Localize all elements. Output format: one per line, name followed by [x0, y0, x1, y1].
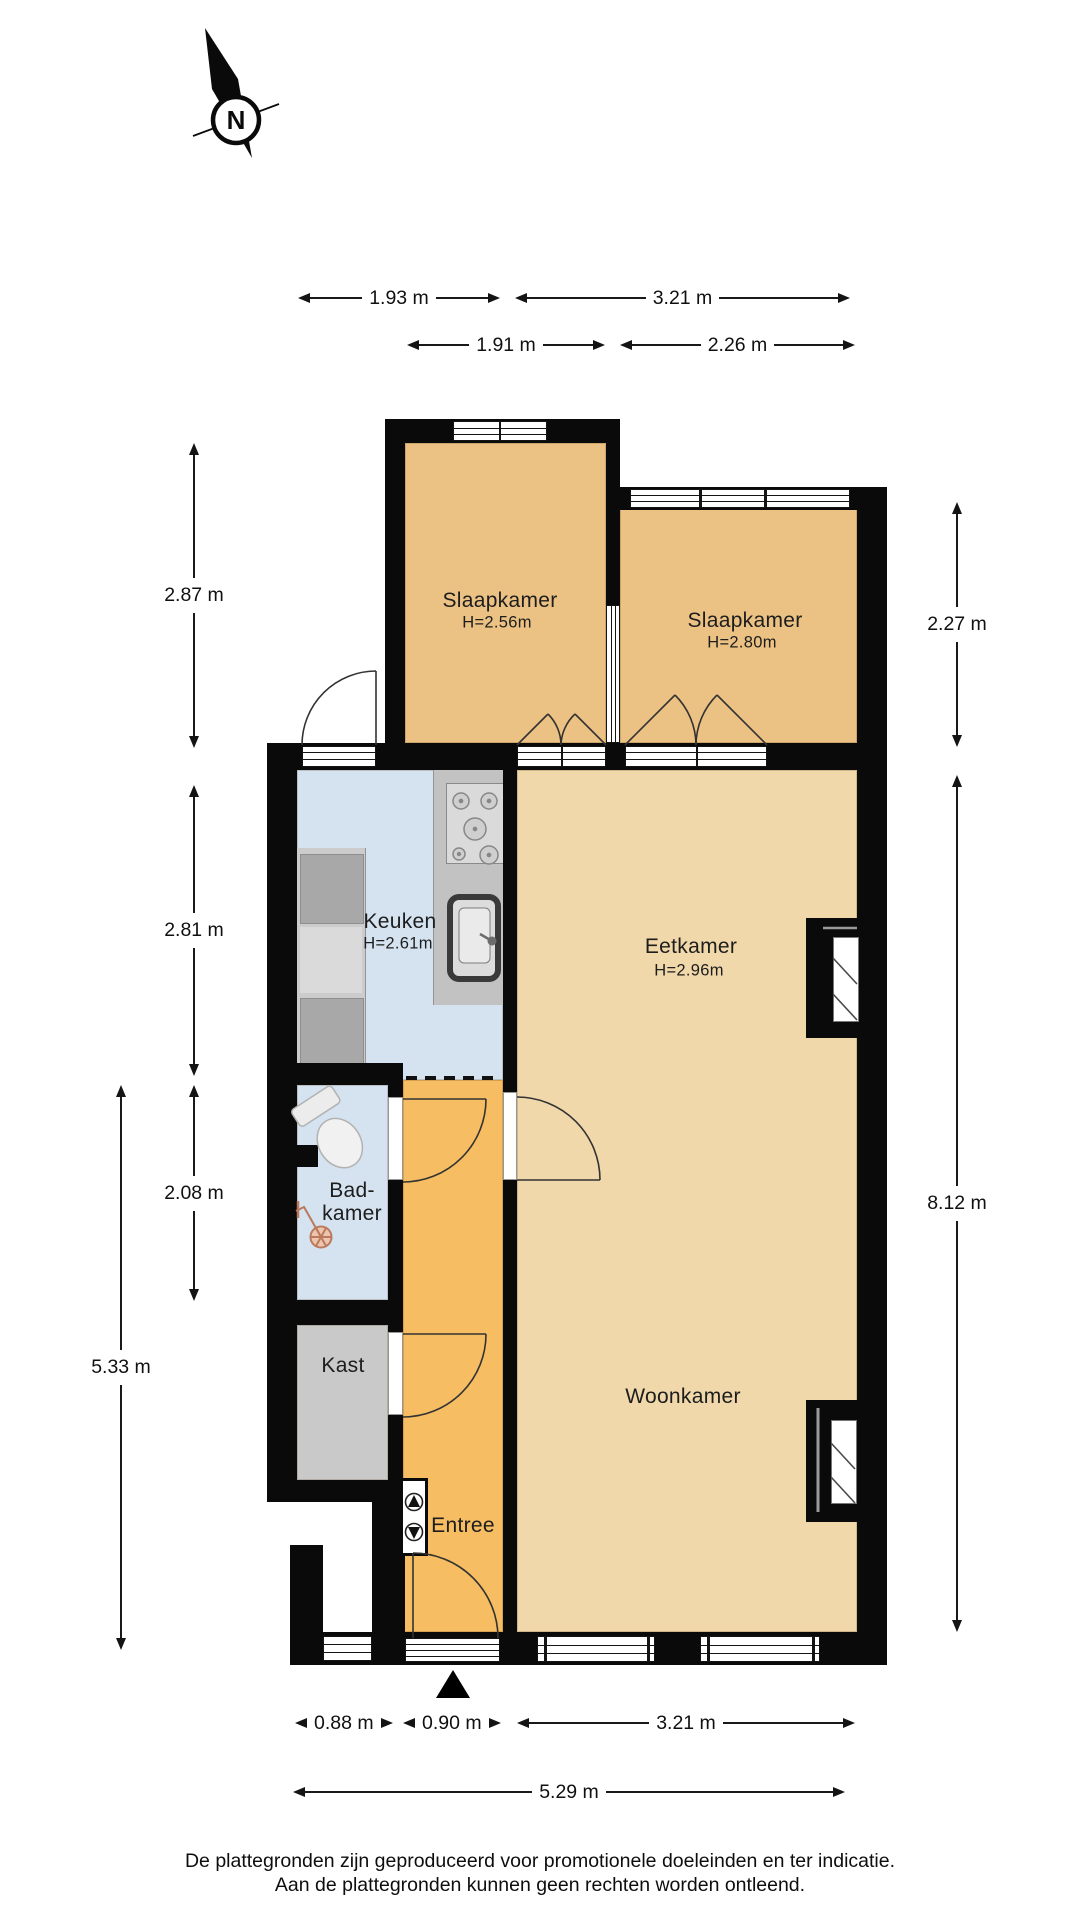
livingroom-window2	[700, 1636, 820, 1662]
room-label-keuken: Keuken	[363, 910, 436, 934]
dimension-label: 2.26 m	[701, 334, 775, 357]
hall-left-wall-upper	[388, 1063, 403, 1097]
bathroom-top-wall	[267, 1063, 403, 1085]
bottom-wall-pillar2	[655, 1632, 700, 1665]
arrow-up-icon	[189, 785, 199, 797]
dimension-bottom-door: 0.90 m	[403, 1713, 500, 1733]
dimension-label: 2.87 m	[164, 578, 224, 613]
dimension-label: 3.21 m	[646, 287, 720, 310]
frenchdoor1-sill	[517, 746, 606, 767]
arrow-left-icon	[517, 1718, 529, 1728]
arrow-down-icon	[189, 1289, 199, 1301]
kitchen-right-wall	[503, 770, 517, 1092]
hall-left-wall-middle	[388, 1180, 403, 1332]
arrow-down-icon	[952, 735, 962, 747]
dimension-label: 1.91 m	[469, 334, 543, 357]
arrow-right-icon	[833, 1787, 845, 1797]
bedroom1-window	[453, 421, 547, 441]
ceiling-label-eetkamer: H=2.96m	[654, 962, 724, 981]
dimension-label: 2.81 m	[164, 913, 224, 948]
dimension-bottom-living: 3.21 m	[517, 1713, 855, 1733]
arrow-right-icon	[488, 293, 500, 303]
arrow-down-icon	[952, 1620, 962, 1632]
room-label-eetkamer: Eetkamer	[645, 935, 737, 959]
arrow-right-icon	[838, 293, 850, 303]
arrow-left-icon	[403, 1718, 415, 1728]
mid-band-kitchen	[376, 743, 517, 770]
dimension-label: 0.88 m	[307, 1712, 381, 1735]
arrow-down-icon	[189, 736, 199, 748]
backdoor-sill	[302, 746, 376, 767]
bathroom-wall-stub	[297, 1145, 318, 1167]
arrow-down-icon	[189, 1064, 199, 1076]
dimension-left-bathroom: 2.08 m	[159, 1085, 229, 1301]
floor-plan-page: { "compass": { "letter": "N" }, "rooms":…	[0, 0, 1080, 1920]
kitchen-backdoor-swing	[302, 671, 376, 745]
dimension-left-kitchen: 2.81 m	[159, 785, 229, 1076]
bedrooms-divider-wall	[606, 443, 620, 605]
left-exterior-wall	[267, 743, 297, 1502]
counter-middle-section	[300, 927, 362, 993]
ceiling-label-slaapkamer2: H=2.80m	[707, 634, 777, 653]
room-label-slaapkamer1: Slaapkamer	[442, 589, 557, 613]
arrow-up-icon	[952, 502, 962, 514]
arrow-left-icon	[293, 1787, 305, 1797]
bottom-wall-pillar1	[500, 1632, 537, 1665]
dimension-label: 2.08 m	[164, 1176, 224, 1211]
bathroom-closet-wall	[267, 1300, 388, 1325]
arrow-up-icon	[189, 443, 199, 455]
ceiling-label-keuken: H=2.61m	[363, 935, 433, 954]
dimension-right-bedroom: 2.27 m	[922, 502, 992, 747]
arrow-up-icon	[952, 775, 962, 787]
arrow-up-icon	[116, 1085, 126, 1097]
room-label-entree: Entree	[431, 1514, 495, 1538]
disclaimer-line1: De plattegronden zijn geproduceerd voor …	[0, 1849, 1080, 1873]
disclaimer-footer: De plattegronden zijn geproduceerd voor …	[0, 1849, 1080, 1897]
bedroom2-window	[630, 489, 850, 508]
stove	[446, 783, 504, 864]
entrance-marker-icon	[436, 1670, 470, 1698]
dimension-label: 8.12 m	[927, 1186, 987, 1221]
bathroom-door-opening	[388, 1097, 403, 1180]
room-label-badkamer-line2: kamer	[322, 1202, 382, 1226]
livingroom-window1	[537, 1636, 655, 1662]
radiator1	[833, 937, 859, 1022]
mid-band-pillar	[606, 743, 625, 770]
closet-bottom-wall	[267, 1480, 403, 1502]
arrow-down-icon	[116, 1638, 126, 1650]
dimension-bottom-total: 5.29 m	[293, 1782, 845, 1802]
arrow-right-icon	[381, 1718, 393, 1728]
appliance-bottom	[300, 998, 364, 1068]
arrow-right-icon	[843, 1718, 855, 1728]
arrow-right-icon	[489, 1718, 501, 1728]
dimension-right-living: 8.12 m	[922, 775, 992, 1632]
dimension-label: 1.93 m	[362, 287, 436, 310]
dimension-label: 5.29 m	[532, 1781, 606, 1804]
frenchdoor2-sill	[625, 746, 767, 767]
bedroom1-left-wall	[385, 419, 405, 770]
livingroom-door-opening	[503, 1092, 517, 1180]
dimension-top2-right: 2.26 m	[620, 335, 855, 355]
dimension-top1-right: 3.21 m	[515, 288, 850, 308]
entrance-door-sill	[405, 1638, 500, 1662]
room-label-kast: Kast	[321, 1354, 364, 1378]
dimension-bottom-window: 0.88 m	[295, 1713, 390, 1733]
bedrooms-divider-window	[606, 605, 620, 743]
bottom-wall-corner	[820, 1632, 887, 1665]
mid-band-right	[767, 743, 857, 770]
dimension-label: 3.21 m	[649, 1712, 723, 1735]
meter-box-face	[403, 1481, 425, 1553]
arrow-left-icon	[620, 340, 632, 350]
dimension-label: 0.90 m	[415, 1712, 489, 1735]
dimension-left-total: 5.33 m	[86, 1085, 156, 1650]
arrow-left-icon	[407, 340, 419, 350]
disclaimer-line2: Aan de plattegronden kunnen geen rechten…	[0, 1873, 1080, 1897]
room-label-badkamer-line1: Bad-	[329, 1179, 375, 1203]
dimension-label: 5.33 m	[91, 1350, 151, 1385]
dimension-left-bedroom: 2.87 m	[159, 443, 229, 748]
arrow-right-icon	[593, 340, 605, 350]
closet-floor	[297, 1325, 388, 1480]
compass-north-letter: N	[227, 105, 246, 135]
dimension-label: 2.27 m	[927, 607, 987, 642]
room-label-slaapkamer2: Slaapkamer	[687, 609, 802, 633]
arrow-up-icon	[189, 1085, 199, 1097]
dimension-top1-left: 1.93 m	[298, 288, 500, 308]
closet-door-opening	[388, 1332, 403, 1415]
entrance-sidelight-window	[323, 1636, 372, 1661]
radiator2	[831, 1420, 857, 1504]
hall-right-wall	[503, 1180, 517, 1632]
dimension-top2-left: 1.91 m	[407, 335, 605, 355]
north-compass-icon: N	[193, 28, 279, 158]
porch-left-column	[290, 1545, 323, 1665]
ceiling-label-slaapkamer1: H=2.56m	[462, 614, 532, 633]
appliance-top	[300, 854, 364, 924]
arrow-left-icon	[515, 293, 527, 303]
arrow-right-icon	[843, 340, 855, 350]
arrow-left-icon	[295, 1718, 307, 1728]
room-label-woonkamer: Woonkamer	[625, 1385, 741, 1409]
arrow-left-icon	[298, 293, 310, 303]
